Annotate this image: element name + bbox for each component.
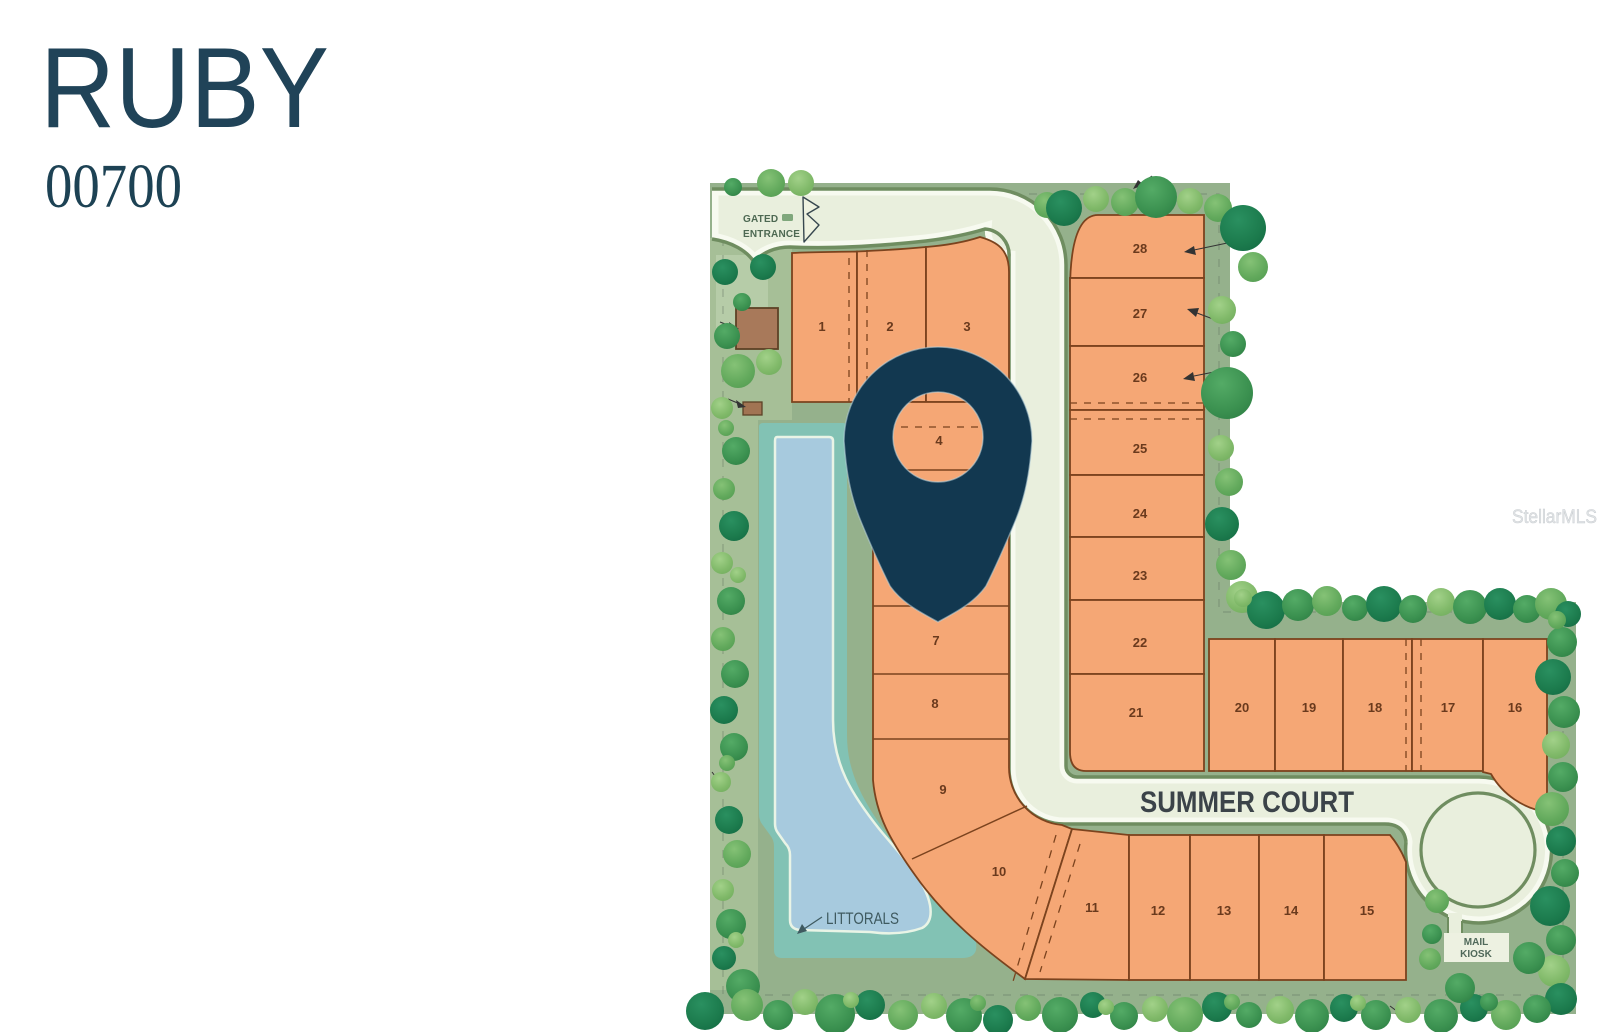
svg-text:GATED: GATED — [743, 214, 778, 225]
svg-text:28: 28 — [1133, 241, 1147, 256]
svg-text:LITTORALS: LITTORALS — [826, 909, 899, 928]
svg-text:MAIL: MAIL — [1464, 937, 1488, 948]
svg-text:13: 13 — [1217, 903, 1231, 918]
svg-text:18: 18 — [1368, 700, 1382, 715]
svg-text:SUMMER COURT: SUMMER COURT — [1140, 786, 1354, 819]
svg-text:24: 24 — [1133, 506, 1148, 521]
svg-text:StellarMLS: StellarMLS — [1512, 507, 1597, 528]
svg-text:25: 25 — [1133, 441, 1147, 456]
svg-text:14: 14 — [1284, 903, 1299, 918]
svg-text:ENTRANCE: ENTRANCE — [743, 229, 800, 240]
svg-text:10: 10 — [992, 864, 1006, 879]
svg-text:11: 11 — [1085, 900, 1099, 915]
svg-text:9: 9 — [939, 782, 946, 797]
svg-text:RUBY: RUBY — [40, 25, 329, 152]
svg-text:19: 19 — [1302, 700, 1316, 715]
svg-text:20: 20 — [1235, 700, 1249, 715]
svg-text:21: 21 — [1129, 705, 1143, 720]
svg-text:3: 3 — [963, 319, 970, 334]
svg-text:15: 15 — [1360, 903, 1374, 918]
svg-text:27: 27 — [1133, 306, 1147, 321]
svg-text:00700: 00700 — [45, 153, 182, 221]
svg-text:2: 2 — [886, 319, 893, 334]
svg-text:1: 1 — [818, 319, 825, 334]
svg-text:17: 17 — [1441, 700, 1455, 715]
svg-text:KIOSK: KIOSK — [1460, 949, 1492, 960]
svg-text:7: 7 — [932, 633, 939, 648]
svg-text:12: 12 — [1151, 903, 1165, 918]
svg-text:4: 4 — [935, 433, 943, 448]
svg-text:22: 22 — [1133, 635, 1147, 650]
svg-text:26: 26 — [1133, 370, 1147, 385]
svg-text:23: 23 — [1133, 568, 1147, 583]
svg-text:16: 16 — [1508, 700, 1522, 715]
svg-text:8: 8 — [931, 696, 938, 711]
